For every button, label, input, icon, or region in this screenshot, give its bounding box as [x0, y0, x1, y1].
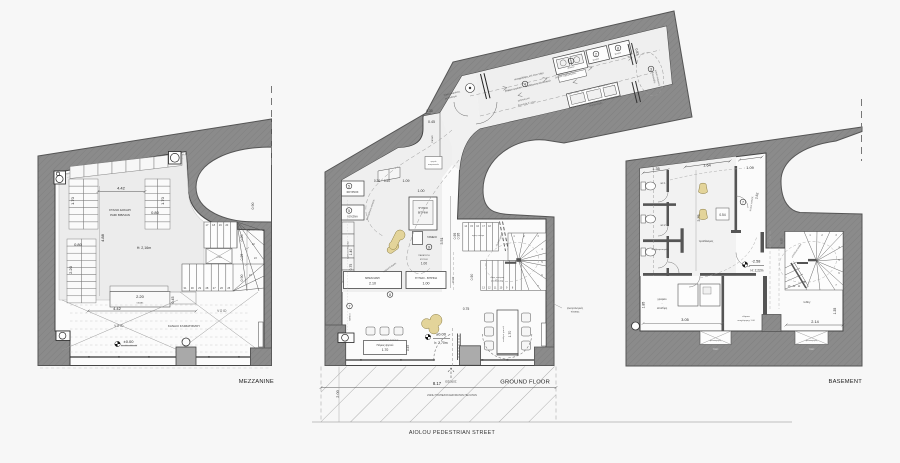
svg-text:3.05: 3.05 [681, 318, 688, 322]
svg-text:BASEMENT: BASEMENT [829, 379, 863, 385]
svg-text:7: 7 [349, 304, 351, 308]
svg-text:1.00: 1.00 [418, 189, 425, 193]
svg-text:1.35: 1.35 [833, 308, 837, 315]
svg-text:υποχώρησης 1.00: υποχώρησης 1.00 [737, 319, 755, 322]
svg-text:VOID: VOID [114, 324, 124, 328]
svg-text:ΜΠΕΝ ΜΑΡΙ: ΜΠΕΝ ΜΑΡΙ [365, 276, 380, 280]
svg-text:ψυγείο: ψυγείο [431, 160, 437, 163]
svg-text:2.20: 2.20 [136, 294, 145, 299]
svg-text:1.70: 1.70 [382, 348, 389, 352]
svg-text:προς υπόγειο: προς υπόγειο [490, 276, 504, 279]
svg-text:ΟΑΤΑΣ: ΟΑΤΑΣ [137, 302, 145, 305]
svg-text:1.35: 1.35 [652, 167, 659, 171]
svg-text:ΨΥΓΕΙΟ - ΒΙΤΡΙΝΑ: ΨΥΓΕΙΟ - ΒΙΤΡΙΝΑ [415, 276, 437, 280]
svg-text:2.20: 2.20 [68, 265, 73, 274]
svg-text:9: 9 [428, 245, 430, 249]
svg-text:ΨΥΓΕΙΟ: ΨΥΓΕΙΟ [418, 206, 428, 210]
svg-text:0.90: 0.90 [470, 274, 474, 281]
svg-text:wc 1: wc 1 [661, 182, 667, 185]
svg-text:αποθήκευση: αποθήκευση [491, 280, 504, 283]
svg-text:2.14: 2.14 [811, 320, 818, 324]
svg-text:ΤΑΜΕΙΟ: ΤΑΜΕΙΟ [427, 235, 437, 239]
svg-text:Η: 2,22m: Η: 2,22m [751, 269, 764, 273]
svg-text:ΡΑΦΙ ΒΙΒΛΙΩΝ: ΡΑΦΙ ΒΙΒΛΙΩΝ [110, 213, 130, 217]
svg-text:MEZZANINE: MEZZANINE [239, 379, 274, 385]
svg-text:0.90: 0.90 [240, 275, 244, 282]
svg-text:0.45: 0.45 [428, 120, 435, 124]
svg-text:0.75: 0.75 [349, 264, 353, 271]
svg-text:VOID: VOID [217, 309, 227, 313]
svg-text:0.95: 0.95 [240, 235, 244, 242]
svg-text:κλίμακα: κλίμακα [742, 315, 750, 318]
svg-text:1.85: 1.85 [642, 302, 646, 309]
svg-text:πίνακας: πίνακας [571, 311, 580, 314]
svg-text:1.70: 1.70 [508, 331, 512, 338]
svg-text:ΖΩΝΗ ΤΡΑΠΕΖΟΚΑΘΙΣΜΑΤΩΝ ΠΕΛΑΤΩΝ: ΖΩΝΗ ΤΡΑΠΕΖΟΚΑΘΙΣΜΑΤΩΝ ΠΕΛΑΤΩΝ [427, 393, 477, 397]
svg-text:0.45: 0.45 [406, 345, 410, 351]
svg-text:προς πατάρι: προς πατάρι [472, 234, 485, 237]
svg-text:0.75: 0.75 [463, 307, 470, 311]
svg-text:h: 2,70m: h: 2,70m [434, 341, 447, 345]
svg-text:1.09: 1.09 [403, 179, 410, 183]
svg-text:VOID: VOID [216, 257, 222, 259]
svg-text:3.51: 3.51 [440, 238, 444, 245]
svg-text:ΕΙΣΟΔΟΣ: ΕΙΣΟΔΟΣ [445, 380, 457, 384]
svg-text:0.54: 0.54 [719, 213, 725, 217]
svg-text:Πάγκος ψηστού: Πάγκος ψηστού [377, 344, 394, 347]
svg-text:ταφρο: ταφρο [809, 349, 815, 351]
svg-text:ΠΑΡΑΓΩΓΗ: ΠΑΡΑΓΩΓΗ [418, 254, 430, 257]
svg-text:ταφρο: ταφρο [713, 349, 719, 351]
svg-text:0.50: 0.50 [384, 179, 390, 183]
svg-text:8: 8 [389, 293, 391, 297]
svg-text:4.88: 4.88 [100, 233, 105, 242]
svg-text:ΚΟΥΖΙΝΑ: ΚΟΥΖΙΝΑ [347, 216, 358, 219]
svg-text:γραφείο: γραφείο [657, 297, 667, 301]
svg-text:lobby: lobby [804, 300, 811, 304]
svg-text:σταθερό τραπέζι: σταθερό τραπέζι [502, 326, 505, 342]
svg-text:5: 5 [348, 209, 350, 213]
svg-text:φωτοαγωγός: φωτοαγωγός [710, 339, 722, 342]
svg-text:ΚΑΝΑΛΙ ΚΛΙΜΑΤΙΣΜΟΥ: ΚΑΝΑΛΙ ΚΛΙΜΑΤΙΣΜΟΥ [168, 324, 200, 328]
svg-text:1.64: 1.64 [703, 164, 710, 168]
svg-text:3: 3 [650, 67, 652, 71]
svg-text:αποθήκη: αποθήκη [657, 306, 668, 310]
svg-text:4.42: 4.42 [117, 186, 126, 191]
svg-text:2: 2 [595, 52, 597, 56]
svg-text:7: 7 [742, 200, 744, 204]
svg-text:±0.00: ±0.00 [124, 339, 135, 344]
svg-text:0.20: 0.20 [374, 179, 380, 183]
svg-text:-: - [662, 303, 663, 306]
svg-text:ΣΤΑΝΟ ΔΟΚΑΡΙ: ΣΤΑΝΟ ΔΟΚΑΡΙ [109, 208, 131, 212]
svg-text:αναψυκτικών: αναψυκτικών [428, 163, 439, 166]
svg-text:wc 2: wc 2 [661, 224, 667, 227]
svg-text:1: 1 [570, 59, 572, 63]
svg-text:ΦΟΥΡΝΟΣ: ΦΟΥΡΝΟΣ [347, 191, 359, 194]
svg-text:0.95: 0.95 [240, 254, 244, 261]
svg-text:1.40: 1.40 [349, 249, 353, 256]
svg-text:2.00: 2.00 [336, 390, 340, 397]
svg-text:1.70: 1.70 [70, 196, 75, 205]
svg-text:4.42: 4.42 [113, 306, 122, 311]
svg-text:GROUND FLOOR: GROUND FLOOR [500, 380, 550, 386]
svg-text:προθάλαμος: προθάλαμος [699, 239, 714, 243]
svg-text:ΠΑΓΚΟΣ: ΠΑΓΚΟΣ [349, 312, 352, 320]
svg-text:5: 5 [348, 184, 350, 188]
svg-text:Η: 2,16m: Η: 2,16m [137, 246, 152, 250]
svg-text:±0.00: ±0.00 [451, 276, 455, 283]
svg-text:AIOLOU PEDESTRIAN STREET: AIOLOU PEDESTRIAN STREET [409, 430, 496, 436]
svg-text:2.10: 2.10 [369, 282, 376, 286]
svg-text:0.95: 0.95 [456, 233, 460, 240]
svg-text:wc Ημιαμεπηκών: wc Ημιαμεπηκών [652, 248, 670, 251]
svg-text:0.45: 0.45 [171, 297, 175, 304]
svg-text:1.09: 1.09 [746, 166, 753, 170]
svg-text:0.90: 0.90 [251, 203, 255, 210]
svg-text:ΠΑΤΑΡΙ: ΠΑΤΑΡΙ [431, 135, 434, 143]
svg-text:0.55: 0.55 [780, 238, 784, 244]
svg-text:-2.58: -2.58 [752, 260, 761, 264]
svg-text:1.00: 1.00 [421, 262, 427, 266]
svg-text:0.80: 0.80 [151, 210, 160, 215]
svg-text:0.30: 0.30 [426, 109, 432, 113]
svg-text:1.00: 1.00 [423, 282, 430, 286]
svg-text:3.78: 3.78 [697, 215, 701, 222]
svg-text:φωτοαγωγός: φωτοαγωγός [806, 339, 818, 342]
svg-text:8.17: 8.17 [433, 381, 442, 386]
svg-text:1.70: 1.70 [160, 196, 165, 205]
svg-text:0.80: 0.80 [74, 242, 83, 247]
svg-text:ΒΙΤΡΙΝΑ: ΒΙΤΡΙΝΑ [418, 211, 428, 215]
svg-text:8: 8 [617, 46, 619, 50]
